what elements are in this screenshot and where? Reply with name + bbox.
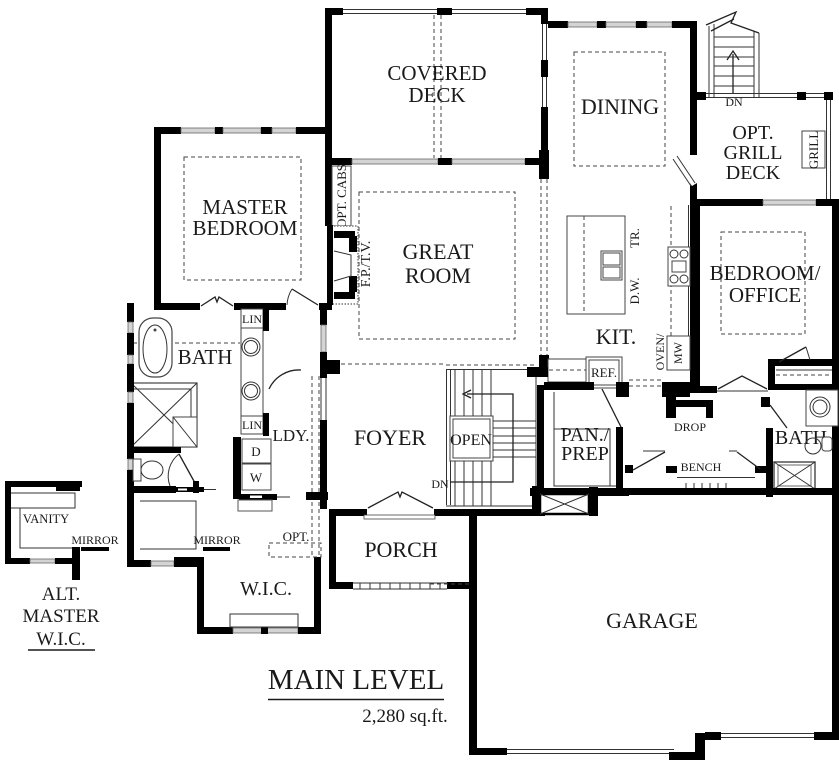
svg-text:FOYER: FOYER [354, 425, 426, 450]
svg-text:D.W.: D.W. [627, 278, 642, 305]
svg-text:PORCH: PORCH [364, 537, 437, 562]
svg-text:MW: MW [671, 341, 685, 364]
svg-text:LIN: LIN [242, 312, 262, 326]
svg-text:W.I.C.: W.I.C. [240, 578, 292, 600]
svg-text:F.P./T.V.: F.P./T.V. [359, 241, 374, 288]
svg-text:OVEN/: OVEN/ [653, 333, 667, 370]
svg-text:BEDROOM/: BEDROOM/ [710, 261, 821, 285]
svg-text:OFFICE: OFFICE [729, 283, 801, 307]
svg-text:BATH: BATH [178, 345, 233, 369]
svg-text:DN: DN [431, 477, 449, 491]
svg-text:ROOM: ROOM [405, 263, 471, 288]
svg-text:MAIN LEVEL: MAIN LEVEL [268, 664, 444, 696]
svg-text:D: D [251, 444, 260, 459]
svg-text:GRILL: GRILL [806, 131, 821, 169]
svg-text:GREAT: GREAT [403, 239, 474, 264]
svg-text:COVERED: COVERED [387, 61, 486, 85]
svg-text:ALT.: ALT. [42, 584, 81, 605]
svg-text:DINING: DINING [581, 94, 659, 119]
svg-text:VANITY: VANITY [23, 512, 69, 526]
svg-text:BENCH: BENCH [681, 460, 722, 474]
svg-text:MIRROR: MIRROR [193, 533, 240, 547]
svg-text:2,280 sq.ft.: 2,280 sq.ft. [362, 706, 448, 727]
svg-text:BATH: BATH [775, 427, 827, 449]
svg-text:MIRROR: MIRROR [71, 533, 118, 547]
svg-text:TR.: TR. [627, 228, 642, 248]
svg-text:GRILL: GRILL [724, 142, 783, 164]
svg-text:KIT.: KIT. [596, 324, 637, 349]
svg-text:DECK: DECK [726, 162, 781, 184]
svg-text:OPT. CABS: OPT. CABS [334, 164, 349, 228]
svg-text:DECK: DECK [408, 83, 465, 107]
svg-text:OPT.: OPT. [732, 122, 773, 144]
svg-text:BEDROOM: BEDROOM [192, 216, 297, 240]
svg-text:GARAGE: GARAGE [606, 608, 698, 633]
svg-text:MASTER: MASTER [22, 606, 99, 627]
svg-text:LIN: LIN [242, 418, 262, 432]
svg-text:PREP: PREP [561, 443, 609, 465]
svg-text:LDY.: LDY. [273, 426, 310, 445]
svg-text:W.I.C.: W.I.C. [36, 629, 85, 650]
svg-text:W: W [250, 470, 263, 485]
svg-text:REF.: REF. [591, 365, 617, 380]
svg-text:OPEN: OPEN [450, 432, 492, 449]
svg-text:DROP: DROP [674, 420, 706, 434]
svg-text:OPT.: OPT. [283, 529, 310, 544]
